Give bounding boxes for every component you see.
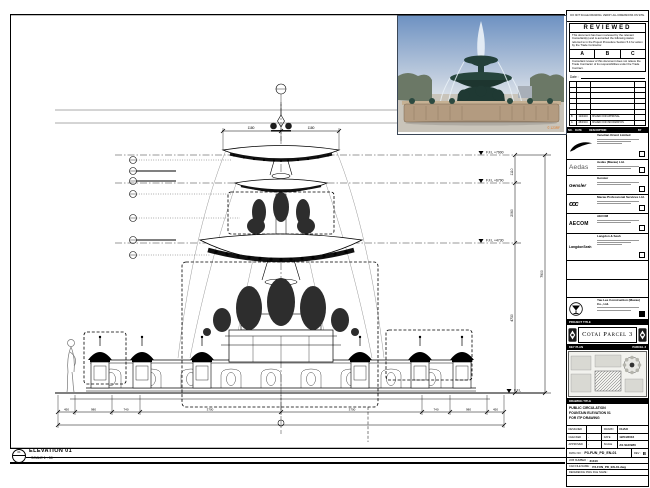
top-dim-1: 1180	[248, 126, 255, 130]
file-name: P3-FUN_PD_EN-01.dwg	[592, 465, 626, 469]
title-underline-2	[10, 462, 565, 464]
bdim-3: 740	[123, 408, 128, 412]
elevation-bubble: 01	[12, 449, 26, 463]
reference-photo: © 123RF	[397, 15, 567, 135]
drawing-title: PUBLIC CIRCULATION FOUNTAIN ELEVATION 01…	[567, 404, 648, 426]
consultant-empty-1	[567, 261, 648, 280]
bdim-1: 450	[64, 408, 69, 412]
bdim-2: 980	[91, 408, 96, 412]
consultant-langdon-seah: LangdonSeah Langdon & Seah	[567, 234, 648, 261]
elevation-label-row: 01 ELEVATION 01 SCALE 1 : 50	[10, 448, 565, 466]
consultant-checkbox	[639, 167, 645, 173]
drawing-title-line-3: FOR ITP DRAWING	[569, 416, 646, 421]
consultant-checkbox	[639, 252, 645, 258]
consultant-checkbox	[639, 225, 645, 231]
vdim-2: 2060	[510, 209, 514, 217]
photo-basin	[402, 98, 561, 126]
revision-table: B 12/04/16 ISSUED FOR APPROVAL A 28/03/1…	[569, 81, 646, 126]
consultant-name: AECOM	[597, 215, 646, 219]
sheet-note: DO NOT SCALE DRAWING. VERIFY ALL DIMENSI…	[567, 11, 648, 22]
key-plan	[567, 350, 648, 399]
contractor-checkbox	[639, 311, 645, 317]
elevation-scale: SCALE 1 : 50	[31, 456, 53, 460]
date-label: Date :	[570, 75, 579, 79]
title-underline	[26, 457, 575, 458]
fields-table: DESIGNED DRAWN CHAO CHECKED - DATE 12/04…	[567, 426, 648, 449]
top-dim-2: 1180	[308, 126, 315, 130]
project-title-banner: Cotai Parcel 3	[567, 325, 648, 345]
revision-row-a: A 28/03/16 ISSUED FOR INFORMATION	[570, 120, 645, 125]
contractor-name: Yau Lee Construction (Macau) Co., Ltd.	[597, 299, 646, 306]
right-dimensions: 1110 2060 4730 7900	[510, 153, 551, 395]
vdim-4: 7900	[540, 270, 544, 278]
vdim-3: 4730	[510, 314, 514, 322]
level-label-1: F.F.L +7900	[486, 151, 504, 155]
consultant-checkbox	[639, 205, 645, 211]
dwg-number-row: DWG NO : P3-FUN_PD_EN-01 REV : B	[567, 449, 648, 458]
scale-figure	[67, 340, 76, 393]
stamp-title: REVIEWED	[570, 24, 645, 33]
elevation-title: ELEVATION 01	[29, 448, 72, 454]
bdim-6: 740	[433, 408, 438, 412]
stamp-date-row: Date :	[570, 74, 645, 79]
stamp-paragraph-1: This document has been reviewed by the r…	[570, 33, 645, 49]
stamp-paragraph-2: Consultant review of this document does …	[570, 59, 645, 71]
revision-value: B	[641, 451, 646, 456]
bdim-4: 3700	[207, 408, 214, 412]
stamp-grades: A B C	[570, 49, 645, 59]
elevation-number: 01	[17, 450, 20, 454]
consultant-empty-2	[567, 280, 648, 298]
date-line	[581, 74, 645, 79]
consultant-name: Langdon & Seah	[597, 235, 646, 239]
aecom-logo-icon: AECOM	[569, 215, 595, 232]
langdon-seah-logo-icon: LangdonSeah	[569, 235, 595, 259]
consultant-mps: ccc Macau Professional Services Ltd.	[567, 195, 648, 214]
aedas-logo-icon: Aedas	[569, 161, 595, 174]
banner-emblem-left-icon	[568, 327, 577, 343]
banner-emblem-right-icon	[638, 327, 647, 343]
grade-b: B	[595, 50, 620, 58]
drawing-sheet: { "sheet": { "top_note": "DO NOT SCALE D…	[0, 0, 650, 488]
consultant-name: Venetian Orient Limited	[597, 134, 646, 138]
mps-logo-icon: ccc	[569, 196, 595, 212]
consultant-aecom: AECOM AECOM	[567, 214, 648, 234]
contractor-box: Yau Lee Construction (Macau) Co., Ltd.	[567, 298, 648, 320]
key-plan-svg	[568, 351, 647, 397]
project-title: Cotai Parcel 3	[578, 327, 637, 343]
dwg-number: P3-FUN_PD_EN-01	[582, 451, 631, 455]
reference-photo-svg: © 123RF	[398, 16, 564, 132]
grade-a: A	[570, 50, 595, 58]
contractor-logo-icon	[569, 299, 595, 318]
bdim-5: 3700	[349, 408, 356, 412]
bdim-7: 980	[466, 408, 471, 412]
level-lines	[115, 155, 515, 243]
consultant-gensler: Gensler Gensler	[567, 176, 648, 195]
gensler-logo-icon: Gensler	[569, 177, 595, 193]
vdim-1: 1110	[510, 168, 514, 175]
bdim-8: 450	[493, 408, 498, 412]
review-stamp-box: REVIEWED This document has been reviewed…	[569, 23, 646, 72]
consultant-checkbox	[639, 186, 645, 192]
photo-watermark: © 123RF	[547, 126, 560, 130]
consultant-checkbox	[639, 151, 645, 157]
level-label-2: F.F.L +6790	[486, 179, 504, 183]
consultant-venetian: Venetian Orient Limited	[567, 133, 648, 160]
titleblock-filler	[567, 476, 648, 486]
title-block: DO NOT SCALE DRAWING. VERIFY ALL DIMENSI…	[566, 10, 649, 487]
consultant-name: Aedas (Macau) Ltd.	[597, 161, 646, 165]
consultant-name: Gensler	[597, 177, 646, 181]
level-label-3: F.F.L +4730	[486, 239, 504, 243]
consultant-aedas: Aedas Aedas (Macau) Ltd.	[567, 160, 648, 176]
review-stamp: REVIEWED This document has been reviewed…	[567, 22, 648, 128]
consultant-name: Macau Professional Services Ltd.	[597, 196, 646, 200]
job-number: 31310	[589, 459, 597, 463]
grade-c: C	[621, 50, 645, 58]
venetian-logo-icon	[569, 134, 595, 158]
